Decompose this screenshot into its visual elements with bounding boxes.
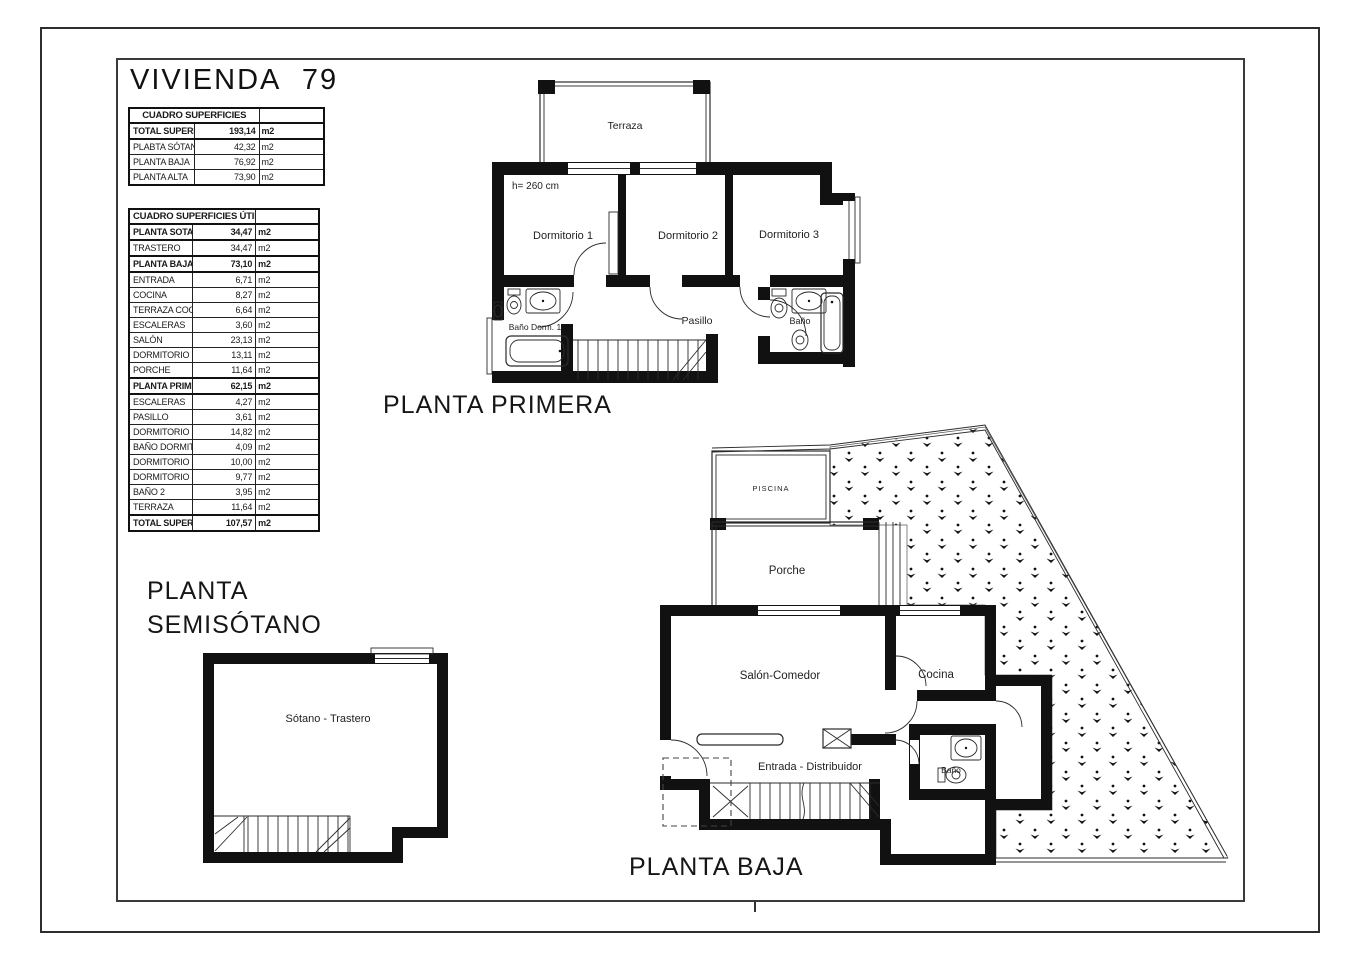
cell-label: PLANTA ALTA bbox=[129, 170, 194, 186]
label-bano-dorm1: Baño Dorm. 1 bbox=[509, 322, 562, 332]
label-entrada: Entrada - Distribuidor bbox=[758, 761, 862, 773]
sotano-walls bbox=[203, 648, 448, 863]
cell-value: 34,47 bbox=[192, 224, 255, 240]
table-row: DORMITORIO 313,11m2 bbox=[129, 348, 319, 363]
cell-value: 42,32 bbox=[194, 139, 259, 155]
cell-unit: m2 bbox=[256, 348, 319, 363]
plan-semisotano-drawing: Sótano - Trastero bbox=[198, 646, 454, 868]
label-salon-comedor: Salón-Comedor bbox=[740, 670, 821, 682]
table-row: PASILLO3,61m2 bbox=[129, 410, 319, 425]
built-areas-table: CUADRO SUPERFICIES TOTAL SUPERFICIE CONS… bbox=[128, 107, 325, 186]
table-row: DORMITORIO 210,00m2 bbox=[129, 455, 319, 470]
cell-unit: m2 bbox=[256, 333, 319, 348]
cell-label: PLANTA BAJA bbox=[129, 155, 194, 170]
cell-value: 23,13 bbox=[192, 333, 255, 348]
frame-center-tick bbox=[754, 902, 756, 912]
cell-value: 10,00 bbox=[192, 455, 255, 470]
cell-unit: m2 bbox=[256, 470, 319, 485]
cell-value: 6,64 bbox=[192, 303, 255, 318]
cell-unit: m2 bbox=[256, 288, 319, 303]
table-row: TRASTERO34,47m2 bbox=[129, 240, 319, 256]
cell-value: 11,64 bbox=[192, 363, 255, 379]
table-row: TERRAZA COCINA6,64m2 bbox=[129, 303, 319, 318]
table-row: TERRAZA11,64m2 bbox=[129, 500, 319, 516]
drawing-sheet: VIVIENDA 79 CUADRO SUPERFICIES TOTAL SUP… bbox=[0, 0, 1359, 960]
table-unit-header bbox=[256, 209, 319, 224]
cell-unit: m2 bbox=[256, 272, 319, 288]
cell-unit: m2 bbox=[259, 123, 324, 139]
cell-label: ESCALERAS bbox=[129, 318, 192, 333]
cell-label: TRASTERO bbox=[129, 240, 192, 256]
cell-value: 73,90 bbox=[194, 170, 259, 186]
dashed-exterior-outline bbox=[663, 758, 731, 826]
cell-unit: m2 bbox=[256, 455, 319, 470]
cell-value: 73,10 bbox=[192, 256, 255, 272]
table-row: PLANTA BAJA76,92m2 bbox=[129, 155, 324, 170]
cell-label: BAÑO 2 bbox=[129, 485, 192, 500]
table-row: PLANTA BAJA73,10m2 bbox=[129, 256, 319, 272]
cell-label: PLABTA SÓTANO bbox=[129, 139, 194, 155]
label-sotano-trastero: Sótano - Trastero bbox=[286, 713, 371, 725]
cell-value: 9,77 bbox=[192, 470, 255, 485]
cell-value: 13,11 bbox=[192, 348, 255, 363]
cell-value: 193,14 bbox=[194, 123, 259, 139]
cell-value: 34,47 bbox=[192, 240, 255, 256]
cell-value: 3,95 bbox=[192, 485, 255, 500]
table-title: CUADRO SUPERFICIES ÚTILES bbox=[129, 209, 256, 224]
table-title: CUADRO SUPERFICIES bbox=[129, 108, 259, 123]
table-row: PLANTA ALTA73,90m2 bbox=[129, 170, 324, 186]
cell-label: PLANTA BAJA bbox=[129, 256, 192, 272]
cell-unit: m2 bbox=[256, 515, 319, 531]
cell-value: 107,57 bbox=[192, 515, 255, 531]
cell-label: TERRAZA bbox=[129, 500, 192, 516]
cell-unit: m2 bbox=[256, 394, 319, 410]
cell-value: 3,61 bbox=[192, 410, 255, 425]
table-header-row: CUADRO SUPERFICIES bbox=[129, 108, 324, 123]
page-title: VIVIENDA 79 bbox=[130, 64, 338, 97]
label-terraza: Terraza bbox=[607, 120, 642, 132]
cell-label: PLANTA PRIMERA bbox=[129, 378, 192, 394]
cell-label: DORMITORIO 2 bbox=[129, 455, 192, 470]
cell-label: DORMITORIO 3 bbox=[129, 470, 192, 485]
cell-value: 6,71 bbox=[192, 272, 255, 288]
label-cocina: Cocina bbox=[918, 669, 954, 681]
table-row: ENTRADA6,71m2 bbox=[129, 272, 319, 288]
cell-label: DORMITORIO 1 bbox=[129, 425, 192, 440]
cell-unit: m2 bbox=[256, 425, 319, 440]
cell-unit: m2 bbox=[256, 240, 319, 256]
cell-unit: m2 bbox=[256, 256, 319, 272]
cell-label: PASILLO bbox=[129, 410, 192, 425]
cell-label: SALÓN bbox=[129, 333, 192, 348]
cell-value: 4,27 bbox=[192, 394, 255, 410]
plan-primera-drawing: Terraza h= 260 cm Dormitorio 1 Dormitori… bbox=[478, 74, 870, 396]
cell-label: TOTAL SUPERFICIE ÚTIL bbox=[129, 515, 192, 531]
cell-label: ENTRADA bbox=[129, 272, 192, 288]
table-row: BAÑO DORMITORIO 14,09m2 bbox=[129, 440, 319, 455]
cell-unit: m2 bbox=[256, 363, 319, 379]
cell-value: 11,64 bbox=[192, 500, 255, 516]
bathroom-fixtures-baja bbox=[938, 736, 981, 783]
table-unit-header bbox=[259, 108, 324, 123]
cell-value: 76,92 bbox=[194, 155, 259, 170]
label-bano: Baño bbox=[789, 316, 810, 326]
cell-label: ESCALERAS bbox=[129, 394, 192, 410]
cell-unit: m2 bbox=[256, 440, 319, 455]
cell-unit: m2 bbox=[256, 378, 319, 394]
cell-unit: m2 bbox=[256, 485, 319, 500]
cell-unit: m2 bbox=[256, 224, 319, 240]
cell-label: PORCHE bbox=[129, 363, 192, 379]
table-row: TOTAL SUPERFICIE CONSTRUIDA193,14m2 bbox=[129, 123, 324, 139]
cell-unit: m2 bbox=[259, 170, 324, 186]
table-row: PLABTA SÓTANO42,32m2 bbox=[129, 139, 324, 155]
cell-label: BAÑO DORMITORIO 1 bbox=[129, 440, 192, 455]
interior-walls bbox=[504, 175, 855, 383]
cell-label: COCINA bbox=[129, 288, 192, 303]
label-dormitorio1: Dormitorio 1 bbox=[533, 230, 593, 242]
label-bano-baja: Baño bbox=[941, 765, 961, 775]
cell-label: DORMITORIO 3 bbox=[129, 348, 192, 363]
label-dormitorio2: Dormitorio 2 bbox=[658, 230, 718, 242]
cell-unit: m2 bbox=[259, 155, 324, 170]
table-row: ESCALERAS3,60m2 bbox=[129, 318, 319, 333]
label-pasillo: Pasillo bbox=[682, 315, 713, 327]
cell-value: 62,15 bbox=[192, 378, 255, 394]
plan-title-line1: PLANTA bbox=[147, 574, 322, 608]
label-height-note: h= 260 cm bbox=[512, 181, 559, 192]
table-row: BAÑO 23,95m2 bbox=[129, 485, 319, 500]
useful-areas-table: CUADRO SUPERFICIES ÚTILES PLANTA SOTANO3… bbox=[128, 208, 320, 532]
table-row: PORCHE11,64m2 bbox=[129, 363, 319, 379]
cell-label: PLANTA SOTANO bbox=[129, 224, 192, 240]
cell-value: 8,27 bbox=[192, 288, 255, 303]
cell-unit: m2 bbox=[256, 318, 319, 333]
table-row: ESCALERAS4,27m2 bbox=[129, 394, 319, 410]
cell-value: 4,09 bbox=[192, 440, 255, 455]
table-row: PLANTA SOTANO34,47m2 bbox=[129, 224, 319, 240]
label-porche: Porche bbox=[769, 565, 805, 577]
plan-title-semisotano: PLANTA SEMISÓTANO bbox=[147, 574, 322, 642]
stairs-baja bbox=[710, 783, 880, 819]
plan-title-line2: SEMISÓTANO bbox=[147, 608, 322, 642]
cell-unit: m2 bbox=[256, 303, 319, 318]
cell-value: 14,82 bbox=[192, 425, 255, 440]
stairs-sotano bbox=[214, 816, 350, 852]
label-piscina: PISCINA bbox=[752, 484, 789, 493]
cell-unit: m2 bbox=[256, 500, 319, 516]
table-header-row: CUADRO SUPERFICIES ÚTILES bbox=[129, 209, 319, 224]
label-dormitorio3: Dormitorio 3 bbox=[759, 229, 819, 241]
table-row: DORMITORIO 114,82m2 bbox=[129, 425, 319, 440]
cell-label: TOTAL SUPERFICIE CONSTRUIDA bbox=[129, 123, 194, 139]
table-row: DORMITORIO 39,77m2 bbox=[129, 470, 319, 485]
cell-unit: m2 bbox=[259, 139, 324, 155]
plan-baja-drawing: PISCINA Porche Salón-Comedor Cocina Entr… bbox=[655, 418, 1235, 870]
porche-outline bbox=[710, 518, 900, 605]
cell-label: TERRAZA COCINA bbox=[129, 303, 192, 318]
table-row: SALÓN23,13m2 bbox=[129, 333, 319, 348]
table-row: COCINA8,27m2 bbox=[129, 288, 319, 303]
cell-unit: m2 bbox=[256, 410, 319, 425]
table-row: PLANTA PRIMERA62,15m2 bbox=[129, 378, 319, 394]
exterior-walls bbox=[487, 162, 860, 383]
cell-value: 3,60 bbox=[192, 318, 255, 333]
table-row: TOTAL SUPERFICIE ÚTIL107,57m2 bbox=[129, 515, 319, 531]
